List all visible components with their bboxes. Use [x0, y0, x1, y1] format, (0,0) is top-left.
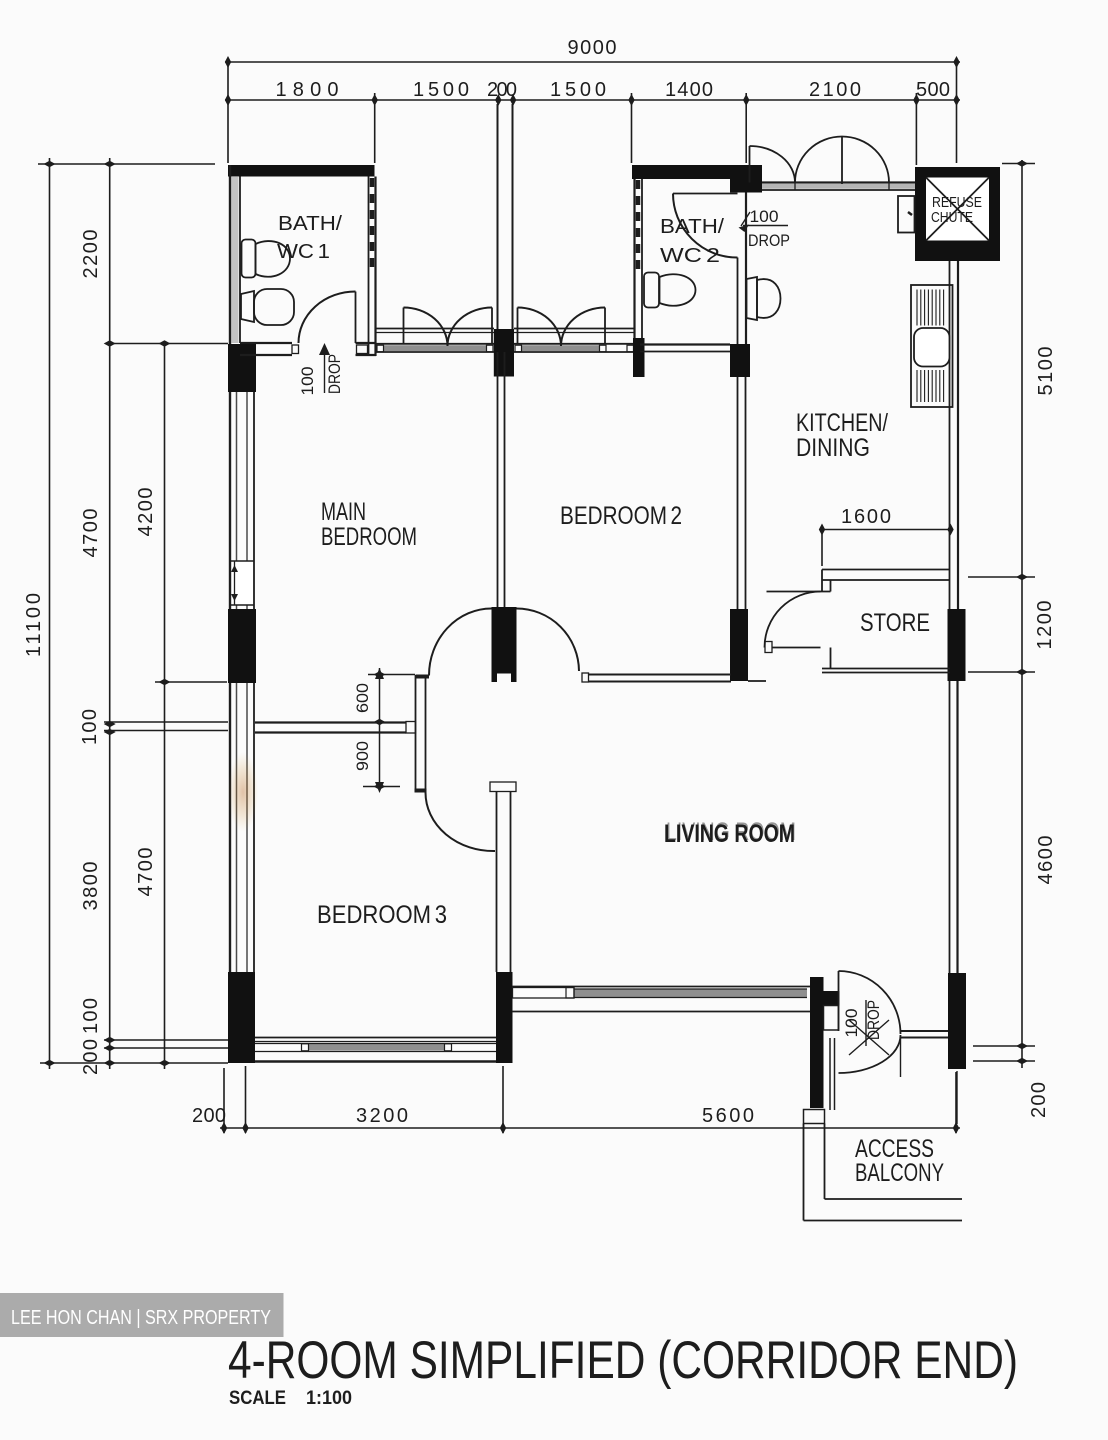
svg-text:900: 900 [354, 741, 372, 771]
svg-text:3200: 3200 [356, 1105, 408, 1127]
svg-text:2100: 2100 [809, 79, 861, 101]
svg-text:5100: 5100 [1035, 347, 1057, 396]
svg-text:9000: 9000 [568, 37, 617, 59]
svg-text:4600: 4600 [1035, 836, 1057, 885]
svg-text:100: 100 [750, 208, 779, 226]
svg-text:STORE: STORE [860, 609, 930, 637]
svg-text:200: 200 [1028, 1082, 1050, 1118]
svg-text:4700: 4700 [80, 509, 102, 558]
svg-text:SCALE: SCALE [229, 1388, 286, 1409]
svg-text:BATH/: BATH/ [660, 215, 724, 238]
svg-text:BATH/: BATH/ [278, 212, 342, 235]
svg-text:600: 600 [354, 683, 372, 713]
svg-text:BALCONY: BALCONY [855, 1159, 944, 1187]
svg-text:200: 200 [80, 1039, 102, 1075]
svg-text:4-ROOM SIMPLIFIED (CORRIDOR EN: 4-ROOM SIMPLIFIED (CORRIDOR END) [228, 1331, 1018, 1390]
svg-text:1200: 1200 [1034, 601, 1056, 650]
svg-text:BEDROOM 2: BEDROOM 2 [560, 502, 682, 530]
svg-text:KITCHEN/: KITCHEN/ [796, 409, 888, 437]
svg-text:100: 100 [80, 998, 102, 1034]
svg-text:500: 500 [916, 79, 950, 101]
svg-text:5600: 5600 [702, 1105, 754, 1127]
svg-text:4200: 4200 [135, 488, 157, 537]
svg-text:1600: 1600 [841, 506, 891, 528]
svg-text:100: 100 [843, 1009, 861, 1038]
svg-text:DROP: DROP [748, 232, 790, 250]
svg-text:DROP: DROP [326, 354, 344, 394]
svg-text:BEDROOM: BEDROOM [321, 523, 417, 551]
svg-text:11100: 11100 [23, 593, 45, 657]
svg-text:DROP: DROP [865, 1000, 883, 1040]
svg-text:LEE HON CHAN | SRX PROPERTY: LEE HON CHAN | SRX PROPERTY [11, 1307, 271, 1329]
svg-text:WC 1: WC 1 [277, 240, 330, 263]
svg-text:200: 200 [487, 79, 517, 101]
svg-text:200: 200 [192, 1105, 226, 1127]
svg-text:DINING: DINING [796, 434, 870, 462]
svg-text:100: 100 [79, 709, 101, 745]
svg-text:BEDROOM 3: BEDROOM 3 [317, 901, 447, 929]
svg-text:LIVING ROOM: LIVING ROOM [666, 818, 796, 846]
svg-text:1500: 1500 [413, 79, 469, 101]
svg-text:100: 100 [299, 367, 317, 396]
svg-text:MAIN: MAIN [321, 498, 366, 526]
svg-text:2200: 2200 [80, 230, 102, 279]
svg-text:CHUTE: CHUTE [931, 209, 973, 226]
svg-text:1500: 1500 [550, 79, 606, 101]
svg-text:WC 2: WC 2 [660, 244, 720, 267]
svg-text:1400: 1400 [665, 79, 713, 101]
svg-text:1800: 1800 [276, 79, 339, 101]
svg-text:3800: 3800 [80, 862, 102, 911]
svg-text:4700: 4700 [135, 848, 157, 897]
svg-text:1:100: 1:100 [306, 1388, 352, 1409]
